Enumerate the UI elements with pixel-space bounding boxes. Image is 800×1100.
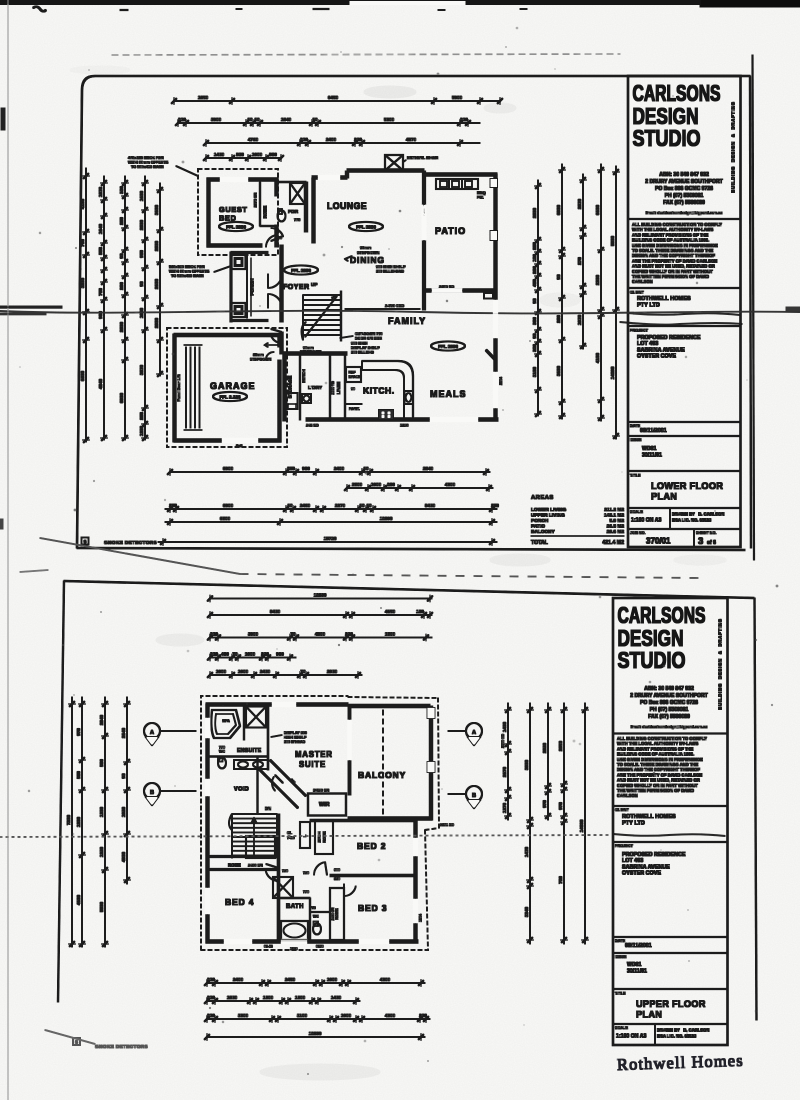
svg-text:VOID: VOID bbox=[234, 787, 249, 793]
svg-text:PH (07) 5500081: PH (07) 5500081 bbox=[650, 707, 689, 713]
svg-text:148.1 M2: 148.1 M2 bbox=[604, 513, 624, 519]
svg-text:STEPDOWN: STEPDOWN bbox=[250, 358, 272, 362]
svg-text:3000: 3000 bbox=[248, 632, 259, 637]
svg-text:5500: 5500 bbox=[99, 901, 104, 912]
svg-text:FFL 2800: FFL 2800 bbox=[356, 224, 376, 229]
svg-text:WITH 60mm OFFSETS: WITH 60mm OFFSETS bbox=[128, 161, 169, 165]
svg-text:1830: 1830 bbox=[98, 186, 103, 197]
svg-text:1300: 1300 bbox=[295, 995, 306, 1000]
svg-text:450: 450 bbox=[532, 279, 537, 287]
svg-text:2900: 2900 bbox=[154, 317, 159, 328]
svg-text:PO Box 806 GCMC 9726: PO Box 806 GCMC 9726 bbox=[655, 186, 713, 192]
svg-text:900: 900 bbox=[276, 652, 284, 657]
svg-text:2400: 2400 bbox=[334, 466, 345, 471]
svg-text:85mm: 85mm bbox=[253, 353, 264, 357]
svg-text:2300: 2300 bbox=[595, 274, 600, 285]
svg-text:UPPER LIVING: UPPER LIVING bbox=[531, 513, 565, 519]
svg-text:3/720 SR: 3/720 SR bbox=[313, 788, 329, 793]
svg-text:PIT.: PIT. bbox=[477, 195, 484, 200]
svg-text:1:100 ON A3: 1:100 ON A3 bbox=[631, 518, 661, 524]
svg-text:4650: 4650 bbox=[385, 609, 396, 614]
svg-text:1030: 1030 bbox=[577, 314, 582, 325]
svg-text:2500: 2500 bbox=[352, 482, 363, 487]
svg-text:FFL 2800: FFL 2800 bbox=[226, 224, 246, 229]
svg-text:ROBE: ROBE bbox=[263, 206, 268, 219]
svg-text:FAX (07) 5500080: FAX (07) 5500080 bbox=[663, 200, 705, 206]
svg-text:LOWER LIVING: LOWER LIVING bbox=[531, 507, 566, 513]
svg-text:220: 220 bbox=[300, 137, 308, 142]
svg-text:800: 800 bbox=[269, 152, 277, 157]
svg-text:PLAN: PLAN bbox=[636, 1010, 662, 1020]
svg-text:750: 750 bbox=[80, 239, 85, 247]
svg-text:PANT.: PANT. bbox=[349, 407, 360, 411]
svg-text:200: 200 bbox=[119, 282, 124, 290]
svg-text:of 6: of 6 bbox=[707, 540, 716, 546]
svg-text:250: 250 bbox=[532, 242, 537, 250]
svg-text:SPACE: SPACE bbox=[349, 375, 361, 379]
svg-text:SUITE: SUITE bbox=[299, 760, 326, 769]
svg-text:4870: 4870 bbox=[406, 137, 417, 142]
svg-text:FFL 2800: FFL 2800 bbox=[291, 268, 311, 273]
svg-text:220: 220 bbox=[207, 995, 215, 1000]
svg-text:220: 220 bbox=[261, 652, 269, 657]
svg-text:250: 250 bbox=[139, 412, 144, 420]
svg-text:STORAGE: STORAGE bbox=[288, 376, 293, 399]
svg-text:90: 90 bbox=[119, 253, 124, 259]
svg-text:ISSUE: ISSUE bbox=[630, 438, 642, 442]
svg-text:TOTAL: TOTAL bbox=[531, 540, 549, 546]
svg-text:A: A bbox=[472, 730, 476, 736]
svg-text:30/11/01: 30/11/01 bbox=[627, 969, 647, 975]
svg-text:Email: davidcarlsondesign@bigp: Email: davidcarlsondesign@bigpond.com.au bbox=[631, 725, 708, 729]
svg-text:OYSTER COVE: OYSTER COVE bbox=[622, 871, 661, 877]
svg-text:510x510 BRCK PER: 510x510 BRCK PER bbox=[169, 265, 205, 269]
svg-text:ABN: 30 549 847 932: ABN: 30 549 847 932 bbox=[644, 686, 694, 692]
svg-text:BSA LIC. NO. 65523: BSA LIC. NO. 65523 bbox=[657, 1034, 697, 1039]
svg-text:WITH 60mm OFFSETS: WITH 60mm OFFSETS bbox=[169, 270, 210, 274]
svg-text:4000: 4000 bbox=[121, 851, 126, 862]
svg-text:WC: WC bbox=[219, 750, 225, 754]
svg-text:2400 SD: 2400 SD bbox=[439, 284, 454, 289]
svg-text:590: 590 bbox=[99, 759, 104, 767]
svg-text:2530: 2530 bbox=[577, 198, 582, 209]
svg-text:14200: 14200 bbox=[610, 366, 615, 379]
svg-text:200: 200 bbox=[387, 482, 395, 487]
svg-text:720: 720 bbox=[303, 871, 309, 875]
svg-text:1300: 1300 bbox=[263, 995, 274, 1000]
svg-text:130: 130 bbox=[416, 609, 424, 614]
svg-text:UP: UP bbox=[311, 282, 317, 287]
svg-text:270: 270 bbox=[577, 257, 582, 265]
svg-text:770: 770 bbox=[303, 890, 309, 894]
svg-text:2400: 2400 bbox=[233, 977, 244, 982]
svg-text:DISPLAY 900: DISPLAY 900 bbox=[284, 731, 307, 735]
svg-text:900: 900 bbox=[302, 466, 310, 471]
svg-text:BALCONY: BALCONY bbox=[531, 529, 556, 535]
svg-text:970: 970 bbox=[542, 800, 547, 808]
svg-text:1000: 1000 bbox=[327, 977, 338, 982]
svg-text:6450: 6450 bbox=[328, 95, 339, 100]
svg-text:8430: 8430 bbox=[270, 609, 281, 614]
svg-text:6000: 6000 bbox=[223, 466, 234, 471]
svg-text:EXTERNL SHWR: EXTERNL SHWR bbox=[407, 155, 438, 160]
svg-text:248 SD: 248 SD bbox=[306, 424, 319, 428]
svg-text:90: 90 bbox=[254, 117, 260, 122]
svg-text:BUILDING DESIGN & DRAFTING: BUILDING DESIGN & DRAFTING bbox=[731, 101, 736, 193]
svg-text:90: 90 bbox=[556, 274, 561, 280]
svg-text:1200: 1200 bbox=[139, 425, 144, 436]
svg-text:1000: 1000 bbox=[238, 669, 249, 674]
svg-text:OYSTER COVE: OYSTER COVE bbox=[637, 354, 676, 360]
svg-text:PROPOSED RESIDENCE: PROPOSED RESIDENCE bbox=[622, 852, 686, 858]
svg-text:320: 320 bbox=[532, 344, 537, 352]
svg-text:2550: 2550 bbox=[558, 740, 563, 751]
svg-text:970: 970 bbox=[76, 728, 81, 736]
svg-text:6000: 6000 bbox=[119, 392, 124, 403]
svg-text:90: 90 bbox=[351, 387, 355, 391]
svg-text:7200: 7200 bbox=[66, 814, 71, 825]
svg-text:2500: 2500 bbox=[119, 321, 124, 332]
svg-text:SMOKE DETECTORS: SMOKE DETECTORS bbox=[104, 540, 157, 546]
svg-text:720: 720 bbox=[282, 869, 288, 873]
svg-text:BUILDING DESIGN & DRAFTING: BUILDING DESIGN & DRAFTING bbox=[718, 618, 723, 710]
svg-text:MASTER: MASTER bbox=[295, 750, 333, 759]
svg-text:1840: 1840 bbox=[281, 117, 292, 122]
svg-text:1920: 1920 bbox=[121, 806, 126, 817]
svg-text:TO 500x415 BASE: TO 500x415 BASE bbox=[131, 165, 164, 169]
svg-text:1430: 1430 bbox=[214, 152, 225, 157]
svg-text:08/11/2001: 08/11/2001 bbox=[625, 943, 652, 949]
svg-text:2861 SD: 2861 SD bbox=[440, 823, 454, 827]
svg-text:2930: 2930 bbox=[327, 669, 338, 674]
svg-text:4300: 4300 bbox=[445, 482, 456, 487]
svg-text:PTY LTD: PTY LTD bbox=[637, 303, 660, 309]
svg-text:1504: 1504 bbox=[419, 914, 423, 922]
svg-text:220: 220 bbox=[210, 632, 218, 637]
svg-text:2450: 2450 bbox=[285, 977, 296, 982]
svg-text:1600: 1600 bbox=[139, 190, 144, 201]
svg-text:WD01: WD01 bbox=[642, 446, 657, 452]
svg-text:120: 120 bbox=[532, 254, 537, 262]
svg-text:2 DRURY AVENUE SOUTHPORT: 2 DRURY AVENUE SOUTHPORT bbox=[645, 179, 723, 185]
svg-text:FAMILY: FAMILY bbox=[388, 316, 426, 326]
svg-text:1000: 1000 bbox=[371, 482, 382, 487]
svg-text:970: 970 bbox=[558, 802, 563, 810]
svg-text:L'DRY: L'DRY bbox=[308, 385, 323, 391]
svg-text:2040: 2040 bbox=[99, 714, 104, 725]
svg-text:90: 90 bbox=[312, 117, 318, 122]
svg-text:3100: 3100 bbox=[297, 1013, 308, 1018]
svg-text:900 HIGH: 900 HIGH bbox=[351, 342, 368, 346]
svg-text:29.6 M2: 29.6 M2 bbox=[607, 529, 625, 535]
svg-text:1640: 1640 bbox=[98, 223, 103, 234]
svg-text:SPA: SPA bbox=[222, 719, 230, 723]
svg-text:LOWER FLOOR: LOWER FLOOR bbox=[651, 481, 723, 491]
svg-text:2-720 CSD: 2-720 CSD bbox=[385, 303, 404, 308]
svg-text:2400 SD: 2400 SD bbox=[423, 202, 427, 216]
svg-text:3340: 3340 bbox=[524, 906, 529, 917]
svg-text:BENCH: BENCH bbox=[302, 369, 306, 383]
svg-text:WIR: WIR bbox=[319, 802, 330, 808]
svg-text:70: 70 bbox=[300, 669, 306, 674]
svg-text:MEALS: MEALS bbox=[430, 389, 467, 399]
svg-text:BALCONY: BALCONY bbox=[358, 770, 406, 780]
svg-text:6500: 6500 bbox=[80, 370, 85, 381]
svg-text:JOB NO.: JOB NO. bbox=[630, 531, 646, 535]
svg-text:BED: BED bbox=[219, 214, 236, 223]
svg-text:4300: 4300 bbox=[380, 977, 391, 982]
svg-text:1000: 1000 bbox=[252, 152, 263, 157]
svg-text:2504: 2504 bbox=[499, 377, 503, 385]
svg-text:1370: 1370 bbox=[502, 802, 507, 813]
svg-text:90: 90 bbox=[247, 117, 253, 122]
svg-text:B: B bbox=[150, 790, 154, 796]
svg-text:1430: 1430 bbox=[331, 995, 342, 1000]
svg-text:4100: 4100 bbox=[80, 198, 85, 209]
svg-text:UPPER FLOOR: UPPER FLOOR bbox=[636, 999, 706, 1009]
svg-text:PTY LTD: PTY LTD bbox=[622, 821, 645, 827]
svg-text:6600: 6600 bbox=[595, 204, 600, 215]
svg-text:2600 SD: 2600 SD bbox=[501, 734, 505, 748]
svg-text:GARAGE: GARAGE bbox=[210, 381, 256, 391]
svg-text:1220: 1220 bbox=[99, 846, 104, 857]
svg-text:6000: 6000 bbox=[556, 204, 561, 215]
svg-text:1830: 1830 bbox=[227, 995, 238, 1000]
svg-text:90: 90 bbox=[121, 773, 126, 779]
svg-text:PATIO: PATIO bbox=[531, 524, 545, 530]
svg-text:ENSUITE: ENSUITE bbox=[237, 748, 262, 754]
svg-text:26.5 M2: 26.5 M2 bbox=[607, 524, 625, 530]
svg-text:TITLE: TITLE bbox=[630, 474, 641, 478]
svg-text:6000: 6000 bbox=[223, 503, 234, 508]
svg-text:950: 950 bbox=[139, 250, 144, 258]
svg-text:2460: 2460 bbox=[300, 503, 311, 508]
svg-text:BSA LIC. NO. 65523: BSA LIC. NO. 65523 bbox=[672, 518, 712, 523]
svg-text:09-15: 09-15 bbox=[264, 945, 273, 949]
svg-text:15720: 15720 bbox=[324, 536, 337, 541]
svg-text:300 B'HEAD: 300 B'HEAD bbox=[284, 740, 306, 744]
svg-text:2500: 2500 bbox=[139, 219, 144, 230]
svg-text:SCALE: SCALE bbox=[615, 1026, 628, 1030]
svg-text:PDR: PDR bbox=[288, 209, 299, 215]
svg-text:4760: 4760 bbox=[248, 137, 259, 142]
svg-text:STUDIO: STUDIO bbox=[633, 125, 701, 151]
svg-text:BATH: BATH bbox=[286, 904, 304, 910]
svg-text:250: 250 bbox=[119, 217, 124, 225]
svg-text:720: 720 bbox=[558, 876, 563, 884]
svg-text:6500: 6500 bbox=[220, 516, 231, 521]
svg-text:90: 90 bbox=[287, 503, 293, 508]
svg-text:1500: 1500 bbox=[385, 632, 396, 637]
svg-text:DRAWN BY D. CARLSON: DRAWN BY D. CARLSON bbox=[672, 512, 724, 517]
svg-text:FOYER: FOYER bbox=[283, 284, 310, 291]
svg-text:1430: 1430 bbox=[524, 846, 529, 857]
svg-text:4100: 4100 bbox=[595, 352, 600, 363]
svg-text:750: 750 bbox=[98, 288, 103, 296]
svg-text:900: 900 bbox=[98, 311, 103, 319]
svg-text:DINING: DINING bbox=[350, 255, 385, 265]
svg-text:DATE: DATE bbox=[615, 939, 626, 943]
svg-text:SABRINA AVENUE: SABRINA AVENUE bbox=[637, 347, 685, 353]
svg-text:211.2 M2: 211.2 M2 bbox=[604, 507, 624, 513]
svg-text:2640: 2640 bbox=[121, 727, 126, 738]
svg-text:2400 SR: 2400 SR bbox=[248, 864, 263, 868]
svg-text:220: 220 bbox=[354, 137, 362, 142]
svg-text:5000: 5000 bbox=[452, 95, 463, 100]
svg-text:4300: 4300 bbox=[385, 1013, 396, 1018]
svg-text:5300: 5300 bbox=[384, 117, 395, 122]
svg-text:220: 220 bbox=[460, 117, 468, 122]
svg-text:ROBE: ROBE bbox=[228, 863, 241, 868]
svg-text:220: 220 bbox=[207, 977, 215, 982]
svg-text:2 DRURY AVENUE SOUTHPORT: 2 DRURY AVENUE SOUTHPORT bbox=[630, 693, 708, 699]
svg-text:TO 550x455 BASE: TO 550x455 BASE bbox=[171, 274, 204, 278]
svg-text:PROJECT: PROJECT bbox=[630, 329, 649, 333]
svg-text:S: S bbox=[75, 1040, 78, 1045]
svg-text:DRAWN BY D. CARLSON: DRAWN BY D. CARLSON bbox=[657, 1028, 709, 1033]
svg-text:1400: 1400 bbox=[502, 721, 507, 732]
svg-text:12990: 12990 bbox=[380, 516, 393, 521]
svg-text:220: 220 bbox=[178, 117, 186, 122]
svg-text:PORCH: PORCH bbox=[250, 278, 256, 296]
svg-text:PROPOSED RESIDENCE: PROPOSED RESIDENCE bbox=[637, 335, 701, 341]
svg-text:4840: 4840 bbox=[98, 378, 103, 389]
svg-text:CLIENT: CLIENT bbox=[630, 291, 644, 295]
svg-text:KITCH.: KITCH. bbox=[363, 386, 395, 396]
svg-text:250: 250 bbox=[491, 503, 499, 508]
svg-text:220: 220 bbox=[207, 1013, 215, 1018]
svg-text:3200: 3200 bbox=[80, 277, 85, 288]
svg-text:SHEET NO.: SHEET NO. bbox=[696, 531, 716, 535]
svg-text:PATIO: PATIO bbox=[435, 226, 466, 236]
svg-text:1000 YD: 1000 YD bbox=[331, 381, 335, 395]
svg-text:FFL 2.226: FFL 2.226 bbox=[219, 394, 241, 399]
svg-text:30/11/01: 30/11/01 bbox=[642, 453, 662, 459]
svg-text:S: S bbox=[83, 539, 86, 544]
svg-text:421.4 M2: 421.4 M2 bbox=[602, 540, 624, 546]
svg-text:300: 300 bbox=[532, 317, 537, 325]
svg-text:2600: 2600 bbox=[154, 278, 159, 289]
svg-text:2070 H: 2070 H bbox=[318, 831, 322, 842]
svg-text:900 HIGH SHELF: 900 HIGH SHELF bbox=[376, 265, 406, 269]
svg-text:1300: 1300 bbox=[99, 806, 104, 817]
svg-text:BED 2: BED 2 bbox=[357, 841, 386, 851]
svg-text:LOT 493: LOT 493 bbox=[637, 341, 658, 347]
svg-text:A: A bbox=[150, 730, 154, 736]
svg-text:1820: 1820 bbox=[400, 424, 408, 428]
svg-text:90: 90 bbox=[366, 503, 372, 508]
svg-text:2500: 2500 bbox=[532, 207, 537, 218]
svg-text:3300: 3300 bbox=[238, 1013, 249, 1018]
svg-text:2670: 2670 bbox=[502, 766, 507, 777]
svg-text:FFL 2800: FFL 2800 bbox=[438, 344, 458, 349]
svg-text:7-10: 7-10 bbox=[287, 836, 295, 840]
svg-text:ROTHWELL HOMES: ROTHWELL HOMES bbox=[622, 814, 676, 820]
svg-text:2840: 2840 bbox=[423, 466, 434, 471]
svg-text:BED 4: BED 4 bbox=[225, 897, 254, 907]
svg-text:220: 220 bbox=[345, 632, 353, 637]
svg-text:250: 250 bbox=[287, 466, 295, 471]
svg-text:4800: 4800 bbox=[315, 632, 326, 637]
svg-text:CARLSON: CARLSON bbox=[632, 279, 653, 284]
svg-text:90: 90 bbox=[139, 281, 144, 287]
svg-text:550: 550 bbox=[76, 771, 81, 779]
svg-text:8x8: 8x8 bbox=[236, 444, 242, 448]
svg-text:STEPDOWN: STEPDOWN bbox=[300, 350, 322, 354]
svg-text:SCALE: SCALE bbox=[630, 510, 643, 514]
svg-text:220: 220 bbox=[419, 1013, 427, 1018]
svg-text:SABRINA AVENUE: SABRINA AVENUE bbox=[622, 864, 670, 870]
svg-text:ROTHWELL HOMES: ROTHWELL HOMES bbox=[637, 296, 691, 302]
svg-text:0820: 0820 bbox=[316, 945, 324, 949]
svg-text:3600: 3600 bbox=[154, 204, 159, 215]
svg-text:5.9 M2: 5.9 M2 bbox=[609, 518, 624, 524]
svg-text:ISSUE: ISSUE bbox=[615, 955, 627, 959]
svg-text:3800: 3800 bbox=[524, 759, 529, 770]
svg-text:70: 70 bbox=[290, 632, 296, 637]
svg-text:370/01: 370/01 bbox=[646, 537, 671, 546]
svg-text:90: 90 bbox=[532, 298, 537, 304]
svg-text:B: B bbox=[472, 793, 476, 799]
svg-text:DOOR ON SITE: DOOR ON SITE bbox=[355, 337, 382, 341]
svg-text:3: 3 bbox=[698, 536, 703, 547]
svg-text:WD01: WD01 bbox=[627, 962, 642, 968]
svg-text:2400 SR: 2400 SR bbox=[331, 907, 335, 920]
svg-text:DISPLAY SHELF: DISPLAY SHELF bbox=[351, 346, 380, 350]
svg-text:BED 3: BED 3 bbox=[358, 903, 387, 913]
svg-text:ROBE: ROBE bbox=[322, 831, 327, 843]
svg-text:2270: 2270 bbox=[335, 503, 346, 508]
svg-text:2820: 2820 bbox=[542, 742, 547, 753]
svg-text:Email: davidcarlsondesign@bigp: Email: davidcarlsondesign@bigpond.com.au bbox=[646, 211, 723, 215]
svg-text:AREAS: AREAS bbox=[531, 495, 554, 501]
svg-text:PH (07) 5500081: PH (07) 5500081 bbox=[665, 193, 704, 199]
svg-text:300 BULKHEAD: 300 BULKHEAD bbox=[376, 270, 404, 274]
svg-text:5800: 5800 bbox=[610, 235, 615, 246]
svg-text:WC: WC bbox=[313, 915, 319, 919]
svg-text:12830: 12830 bbox=[309, 1031, 322, 1036]
svg-text:1800: 1800 bbox=[290, 947, 298, 951]
svg-text:1000: 1000 bbox=[245, 652, 256, 657]
svg-text:LOUNGE: LOUNGE bbox=[327, 201, 367, 211]
svg-text:90: 90 bbox=[359, 503, 365, 508]
svg-text:90: 90 bbox=[363, 466, 369, 471]
svg-text:2500: 2500 bbox=[154, 240, 159, 251]
svg-text:PLAN: PLAN bbox=[651, 492, 677, 502]
svg-text:CARLSON: CARLSON bbox=[617, 793, 638, 798]
svg-text:250: 250 bbox=[169, 503, 177, 508]
svg-text:STUDIO: STUDIO bbox=[618, 647, 686, 673]
svg-text:2400: 2400 bbox=[326, 137, 337, 142]
svg-text:770: 770 bbox=[294, 218, 300, 222]
svg-text:400: 400 bbox=[221, 652, 229, 657]
svg-text:08/11/2001: 08/11/2001 bbox=[640, 428, 667, 434]
svg-text:1850: 1850 bbox=[198, 95, 209, 100]
svg-text:8430: 8430 bbox=[425, 503, 436, 508]
svg-text:470x335 BRCK PER: 470x335 BRCK PER bbox=[128, 156, 164, 160]
svg-text:3100: 3100 bbox=[532, 366, 537, 377]
svg-text:70: 70 bbox=[232, 652, 238, 657]
svg-text:CL: CL bbox=[287, 831, 293, 835]
svg-text:3530: 3530 bbox=[139, 364, 144, 375]
svg-text:Panel Door Lift: Panel Door Lift bbox=[177, 374, 181, 402]
svg-text:14030: 14030 bbox=[579, 819, 584, 832]
svg-text:200: 200 bbox=[556, 315, 561, 323]
svg-text:CUT-DOWN 770: CUT-DOWN 770 bbox=[355, 332, 382, 336]
svg-text:PROJECT: PROJECT bbox=[615, 844, 634, 848]
svg-text:CLIENT: CLIENT bbox=[615, 808, 629, 812]
svg-text:DN: DN bbox=[265, 806, 271, 811]
